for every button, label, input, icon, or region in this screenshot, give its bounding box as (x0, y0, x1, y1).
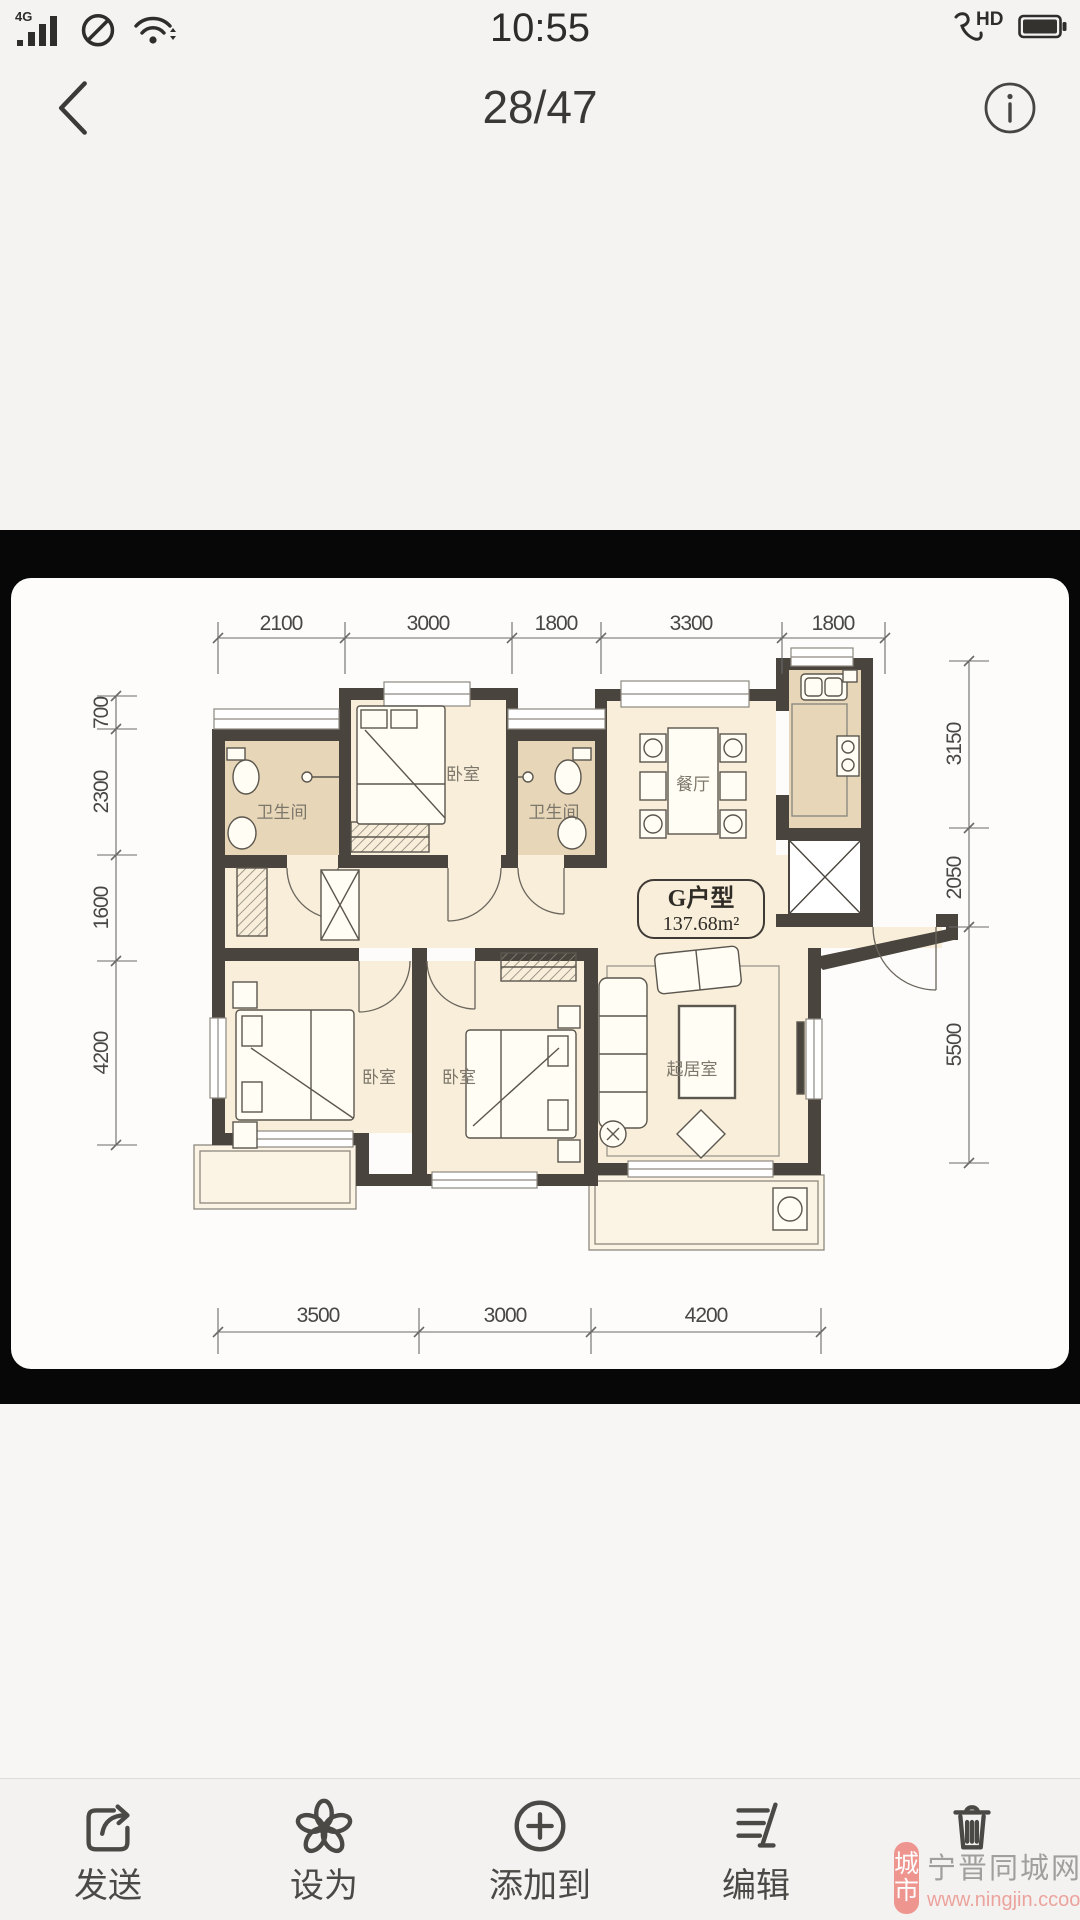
room-label-bed2: 卧室 (362, 1068, 396, 1087)
share-icon (75, 1793, 141, 1859)
dim-left-3: 1600 (90, 886, 113, 929)
send-label: 发送 (74, 1869, 142, 1903)
dim-top-1: 2100 (260, 612, 303, 635)
send-button[interactable]: 发送 (0, 1779, 216, 1920)
hd-call-icon: HD (946, 8, 1008, 46)
dim-right-3: 5500 (943, 1023, 966, 1066)
dim-top-3: 1800 (535, 612, 578, 635)
clock: 10:55 (0, 6, 1080, 51)
phone-screen: 4G 10:55 HD (0, 0, 1080, 1920)
dim-bottom-3: 4200 (685, 1304, 728, 1327)
plan-title-box: G户型 137.68m² (638, 880, 764, 938)
dim-bottom-2: 3000 (484, 1304, 527, 1327)
seal-char-2: 市 (894, 1878, 919, 1906)
dim-top-5: 1800 (812, 612, 855, 635)
add-to-button[interactable]: 添加到 (432, 1779, 648, 1920)
edit-button[interactable]: 编辑 (648, 1779, 864, 1920)
dim-right-1: 3150 (943, 722, 966, 765)
edit-icon (723, 1793, 789, 1859)
info-button[interactable] (980, 78, 1040, 138)
status-right-icons: HD (946, 8, 1068, 46)
dim-left-4: 4200 (90, 1031, 113, 1074)
room-label-dining: 餐厅 (676, 775, 710, 794)
dim-left-2: 2300 (90, 770, 113, 813)
floor-plan-photo[interactable]: 2100 3000 1800 3300 1800 700 2300 1600 4… (11, 578, 1069, 1369)
dim-left-1: 700 (90, 697, 113, 729)
status-bar: 4G 10:55 HD (0, 0, 1080, 54)
flower-icon (291, 1793, 357, 1859)
room-label-bed3: 卧室 (442, 1068, 476, 1087)
photo-viewer: 2100 3000 1800 3300 1800 700 2300 1600 4… (0, 530, 1080, 1404)
seal-char-1: 城 (894, 1851, 919, 1879)
add-to-label: 添加到 (489, 1869, 591, 1903)
dim-top-4: 3300 (670, 612, 713, 635)
content-spacer (0, 1404, 1080, 1778)
edit-label: 编辑 (722, 1869, 790, 1903)
set-as-button[interactable]: 设为 (216, 1779, 432, 1920)
plan-area: 137.68m² (663, 913, 740, 935)
dim-bottom-1: 3500 (297, 1304, 340, 1327)
photo-counter: 28/47 (0, 80, 1080, 134)
add-circle-icon (507, 1793, 573, 1859)
room-label-bed1: 卧室 (446, 765, 480, 784)
battery-icon (1018, 13, 1068, 41)
volte-label: HD (976, 9, 1003, 30)
watermark-seal: 城 市 (894, 1842, 919, 1914)
dim-right-2: 2050 (943, 856, 966, 899)
site-watermark: 城 市 宁晋同城网 www.ningjin.ccoo.cn (894, 1842, 1080, 1914)
floor-plan-svg: 2100 3000 1800 3300 1800 700 2300 1600 4… (11, 578, 1069, 1369)
room-label-living: 起居室 (667, 1060, 718, 1079)
plan-title: G户型 (668, 884, 735, 912)
nav-bar: 28/47 (0, 54, 1080, 160)
room-label-bath2: 卫生间 (529, 803, 580, 822)
watermark-site-name: 宁晋同城网 (927, 1845, 1080, 1887)
room-label-bath1: 卫生间 (257, 803, 308, 822)
dim-top-2: 3000 (407, 612, 450, 635)
set-as-label: 设为 (290, 1869, 358, 1903)
watermark-site-url: www.ningjin.ccoo.cn (927, 1889, 1080, 1912)
